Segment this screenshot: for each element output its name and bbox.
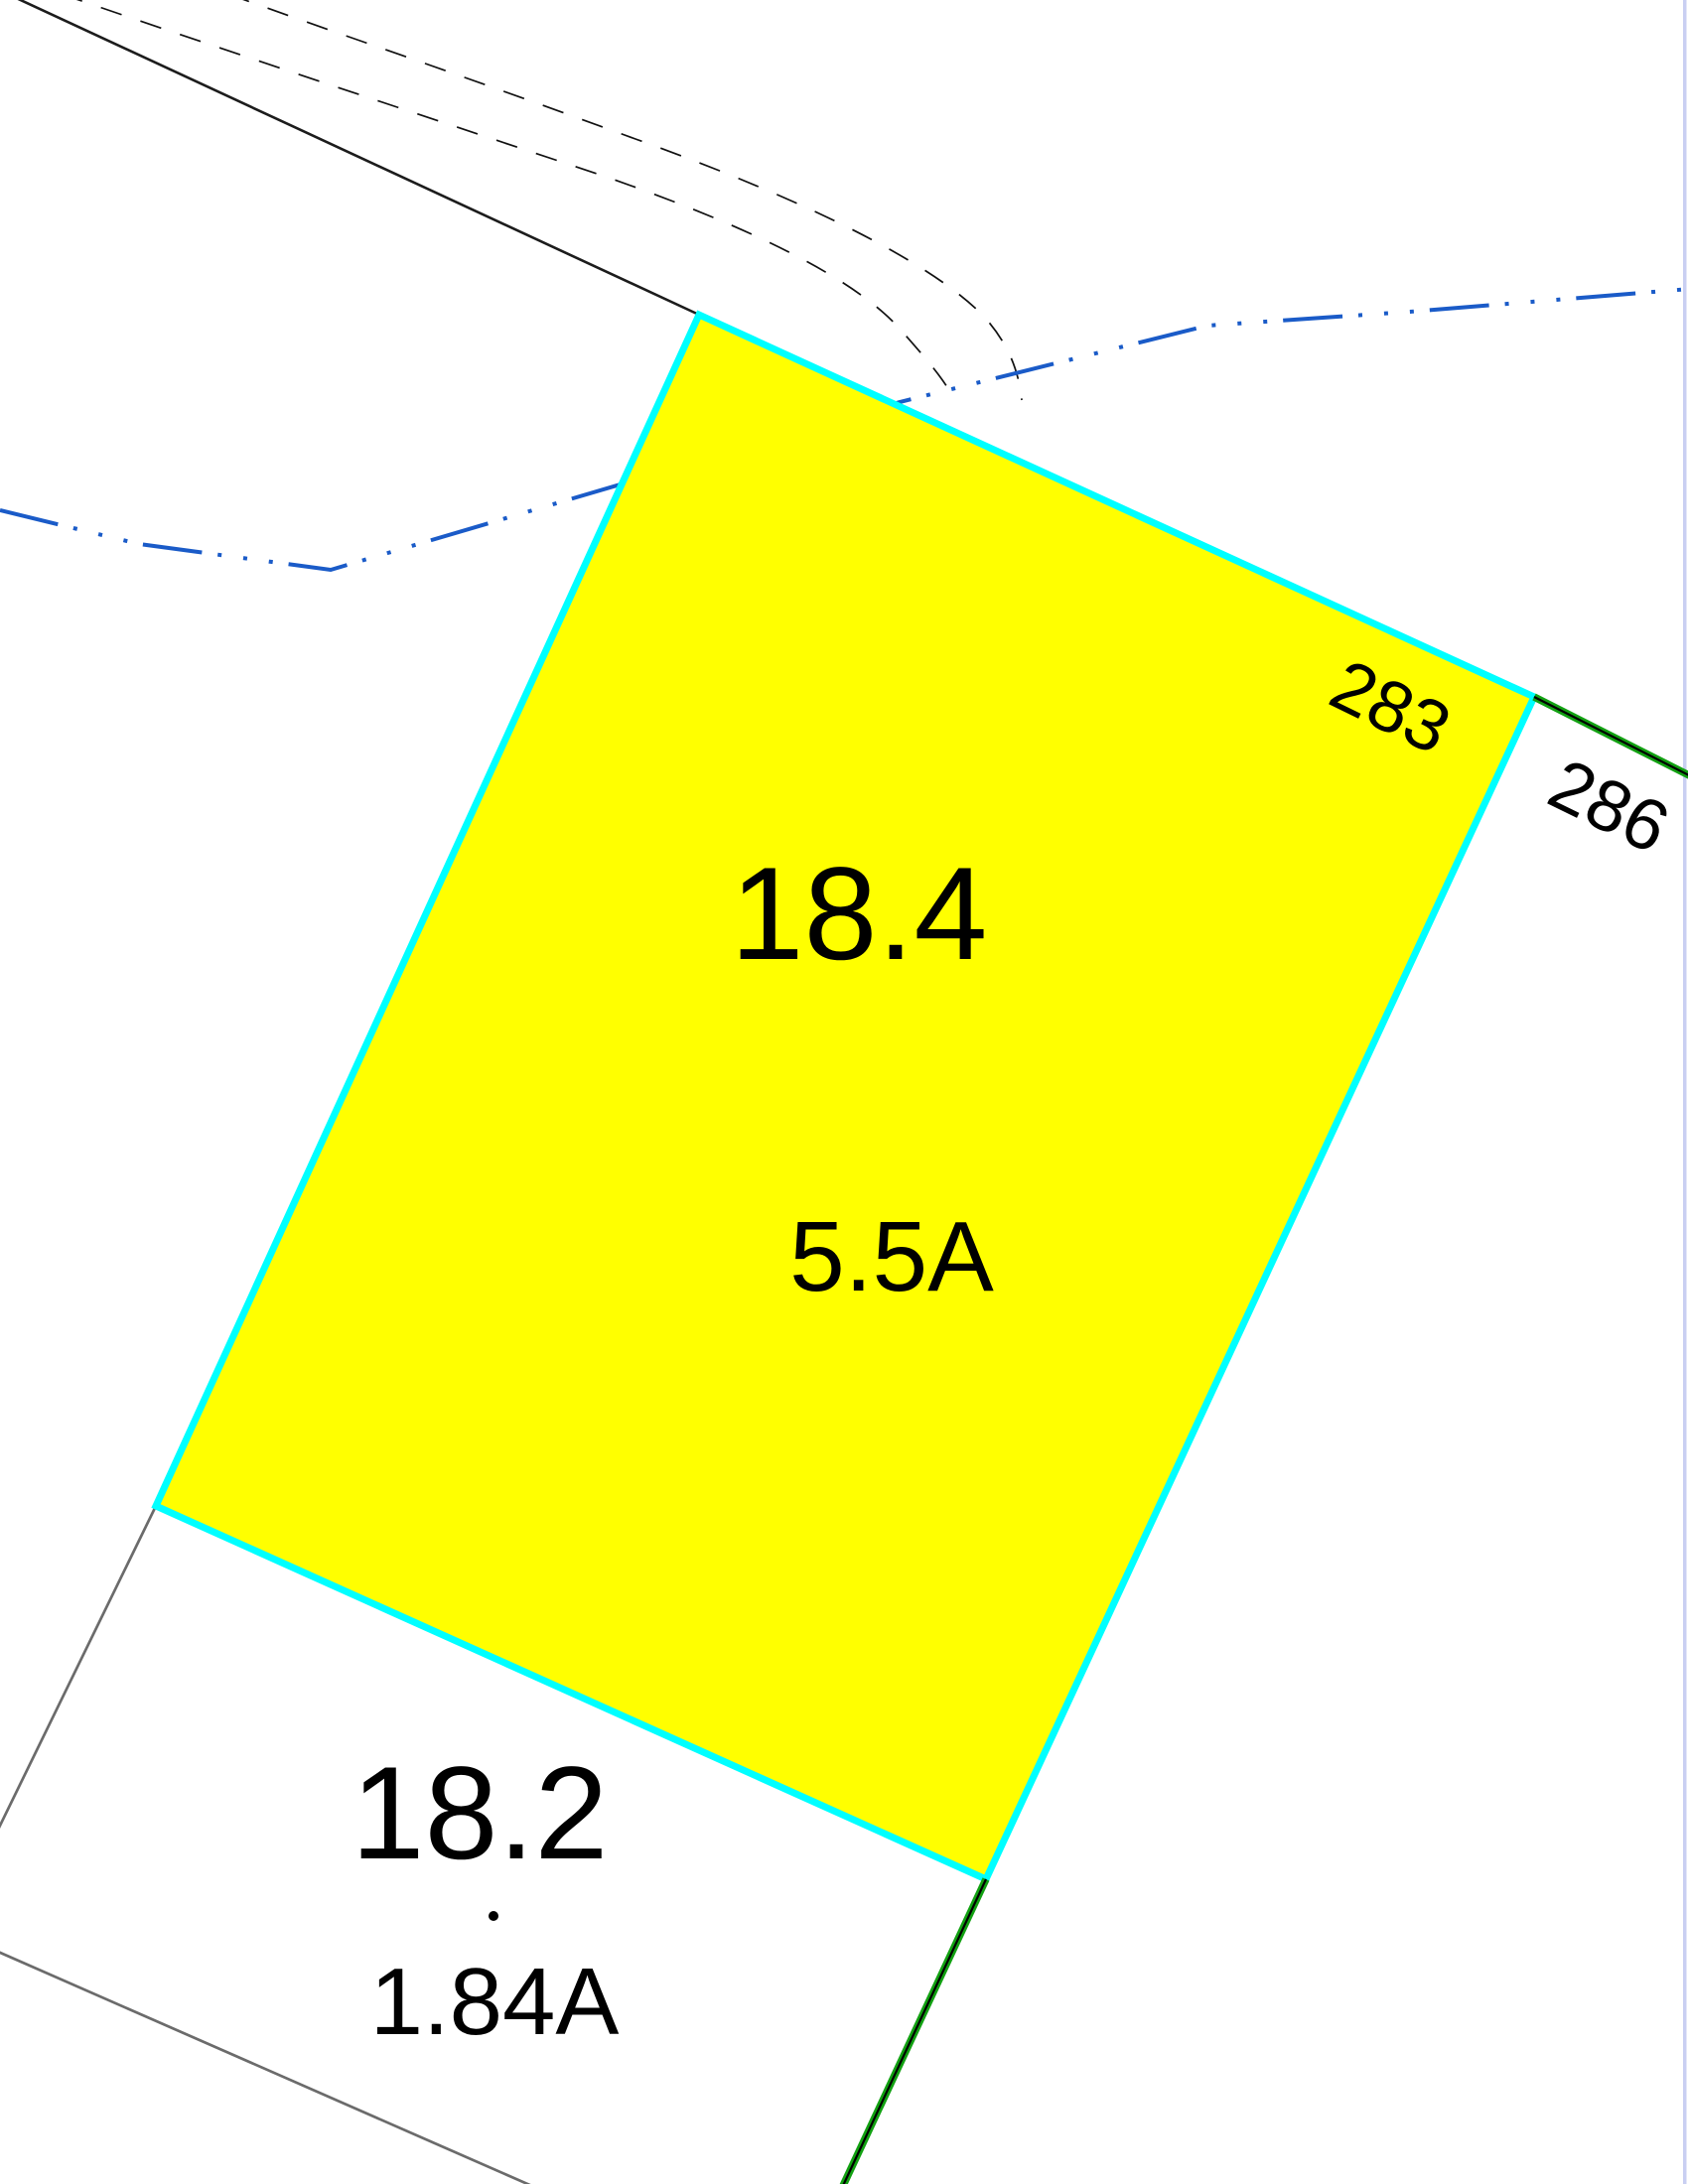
parcel-map-viewport: 18.4 5.5A 18.2 1.84A 283 286 (0, 0, 1688, 2184)
neighbor-parcel-acreage-label: 1.84A (370, 1949, 620, 2055)
neighbor-parcel-lot-label: 18.2 (352, 1740, 609, 1887)
map-canvas-edge-line (1683, 0, 1687, 2184)
parcel-boundary-line (0, 1506, 156, 1830)
selected-parcel-acreage-label: 5.5A (789, 1201, 994, 1312)
selected-parcel-lot-label: 18.4 (731, 841, 988, 988)
dashed-road-line-west (62, 0, 954, 400)
dashed-road-lines (62, 0, 1022, 400)
parcel-map-canvas[interactable]: 18.4 5.5A 18.2 1.84A 283 286 (0, 0, 1688, 2184)
selected-parcel-polygon[interactable] (156, 315, 1534, 1879)
point-marker (489, 1911, 498, 1921)
boundary-line-solid (12, 0, 699, 315)
dashed-road-line-east (228, 0, 1022, 400)
